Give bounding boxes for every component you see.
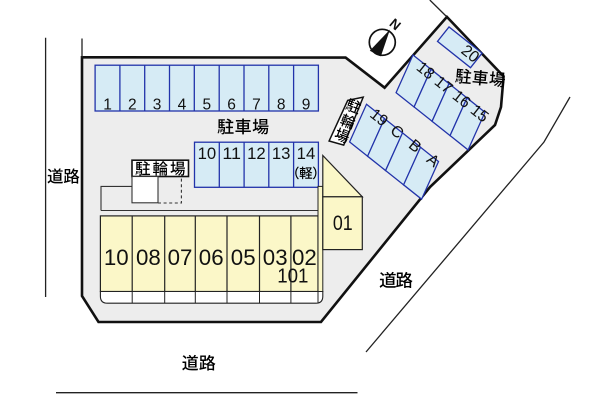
svg-text:12: 12 — [247, 145, 266, 163]
svg-text:01: 01 — [333, 212, 353, 235]
svg-text:06: 06 — [199, 245, 224, 270]
svg-text:14: 14 — [297, 145, 316, 163]
svg-text:13: 13 — [272, 145, 291, 163]
svg-text:1: 1 — [103, 97, 112, 114]
svg-text:3: 3 — [153, 97, 162, 114]
svg-text:07: 07 — [168, 245, 193, 270]
svg-text:7: 7 — [252, 97, 261, 114]
svg-text:5: 5 — [202, 97, 211, 114]
svg-text:9: 9 — [302, 97, 311, 114]
svg-text:4: 4 — [178, 97, 187, 114]
svg-text:08: 08 — [136, 245, 161, 270]
svg-text:8: 8 — [277, 97, 286, 114]
svg-text:10: 10 — [198, 145, 217, 163]
svg-text:10: 10 — [104, 245, 129, 270]
svg-text:11: 11 — [222, 145, 241, 163]
svg-text:101: 101 — [277, 265, 308, 287]
svg-text:2: 2 — [128, 97, 137, 114]
svg-text:05: 05 — [231, 245, 256, 270]
svg-text:6: 6 — [227, 97, 236, 114]
